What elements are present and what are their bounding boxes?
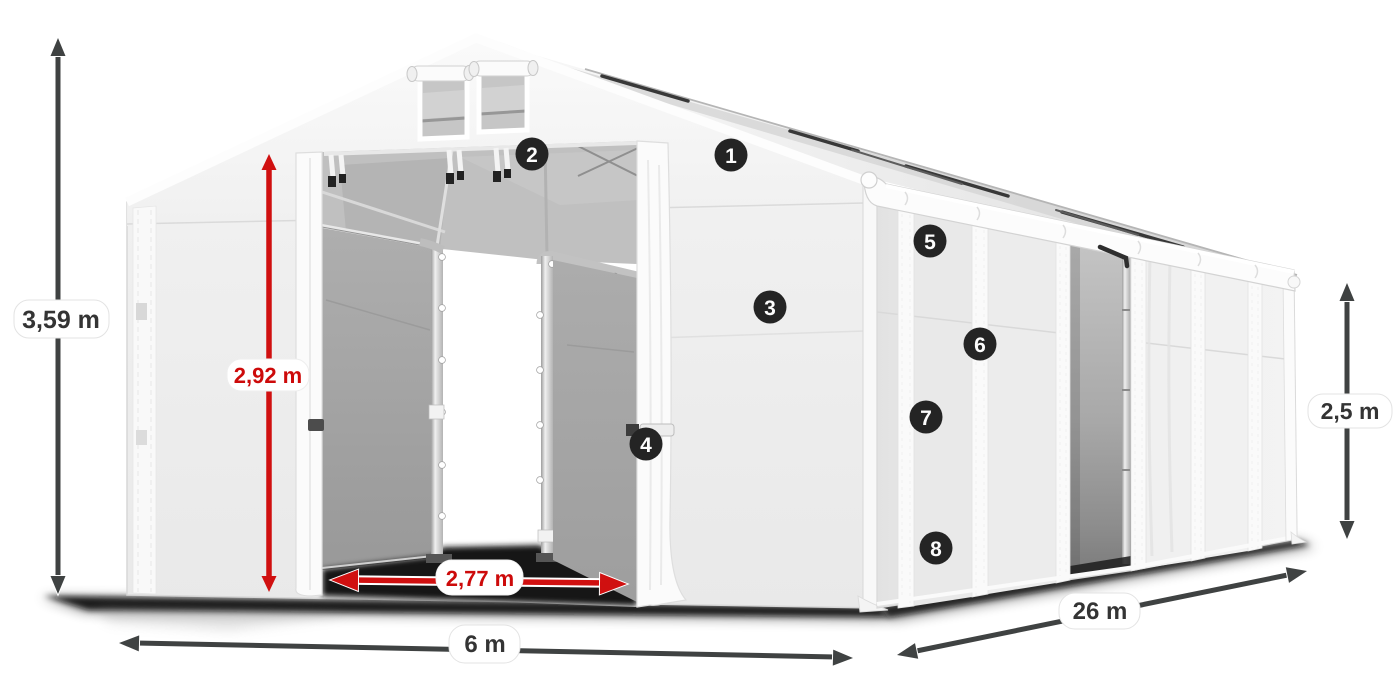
svg-text:5: 5 bbox=[924, 231, 936, 254]
svg-text:6 m: 6 m bbox=[464, 631, 505, 658]
svg-text:26 m: 26 m bbox=[1073, 598, 1128, 625]
svg-text:2,92 m: 2,92 m bbox=[234, 363, 303, 388]
svg-text:8: 8 bbox=[930, 538, 942, 561]
svg-text:3,59 m: 3,59 m bbox=[22, 306, 100, 334]
svg-text:1: 1 bbox=[725, 145, 737, 168]
svg-text:3: 3 bbox=[764, 297, 776, 320]
svg-text:4: 4 bbox=[640, 434, 652, 457]
svg-text:6: 6 bbox=[974, 334, 986, 357]
svg-text:2: 2 bbox=[526, 144, 538, 167]
svg-text:2,5 m: 2,5 m bbox=[1321, 398, 1380, 424]
svg-text:7: 7 bbox=[920, 407, 932, 430]
svg-text:2,77 m: 2,77 m bbox=[446, 566, 515, 591]
